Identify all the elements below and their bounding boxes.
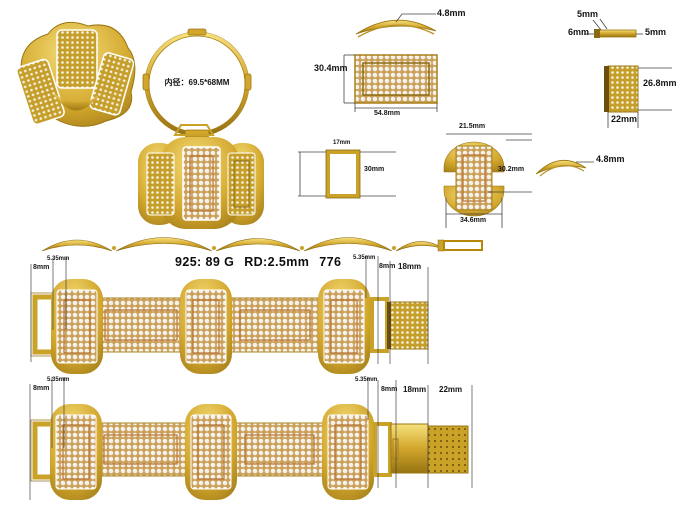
dim-tube-height: 30mm	[364, 166, 384, 173]
dim-end-bar-top: 5mm	[577, 10, 598, 19]
dim-top-arc-thickness: 4.8mm	[437, 9, 466, 18]
dim-bracelet-b-left-gap: 5.35mm	[47, 377, 69, 383]
dim-tube-width: 17mm	[333, 140, 350, 146]
spec-line: 925: 89 G RD:2.5mm 776	[175, 255, 341, 269]
dim-link-top-width: 21.5mm	[459, 123, 485, 130]
dim-clasp-box-width: 22mm	[611, 115, 637, 124]
design-sheet: 内径：69.5*68MM 4.8mm 5mm 6mm 5mm 30.4mm 54…	[0, 0, 700, 525]
dim-link-bottom-width: 34.6mm	[460, 217, 486, 224]
tube-view	[298, 150, 396, 198]
top-arc-view	[356, 14, 436, 37]
dim-link-height: 30.2mm	[498, 166, 524, 173]
dim-bracelet-a-left-edge: 8mm	[33, 264, 49, 271]
dim-bracelet-a-right-edge: 8mm	[379, 263, 395, 270]
dim-bracelet-a-left-gap: 5.35mm	[47, 256, 69, 262]
station-top-view	[138, 125, 264, 229]
spec-code: 776	[319, 255, 341, 269]
dim-bracelet-b-box: 22mm	[439, 386, 462, 394]
perspective-view	[16, 22, 135, 126]
dim-bracelet-a-right-gap: 5.35mm	[353, 255, 375, 261]
dim-end-bar-left: 6mm	[568, 28, 589, 37]
dim-bracelet-a-clasp: 18mm	[398, 263, 421, 271]
dim-bracelet-b-right-edge: 8mm	[381, 386, 397, 393]
link-view	[444, 134, 532, 228]
dim-bracelet-b-right-gap: 5.35mm	[355, 377, 377, 383]
end-bar-view	[584, 19, 643, 38]
center-plate-view	[344, 55, 437, 112]
dim-bracelet-b-clasp: 18mm	[403, 386, 426, 394]
dim-plate-height: 30.4mm	[314, 64, 348, 73]
bracelet-top-view-a	[31, 256, 428, 374]
dim-end-bar-right: 5mm	[645, 28, 666, 37]
spec-stone-size: RD:2.5mm	[244, 255, 309, 269]
bracelet-top-view-b	[30, 377, 472, 500]
ring-inner-diameter-label: 内径：69.5*68MM	[155, 79, 239, 87]
chain-side-view	[42, 238, 482, 252]
side-arc-view	[536, 160, 594, 176]
jewelry-line-art	[0, 0, 700, 525]
dim-clasp-box-height: 26.8mm	[643, 79, 677, 88]
dim-side-arc-thickness: 4.8mm	[596, 155, 625, 164]
dim-bracelet-b-left-edge: 8mm	[33, 385, 49, 392]
dim-plate-width: 54.8mm	[374, 110, 400, 117]
spec-metal-weight: 925: 89 G	[175, 255, 234, 269]
